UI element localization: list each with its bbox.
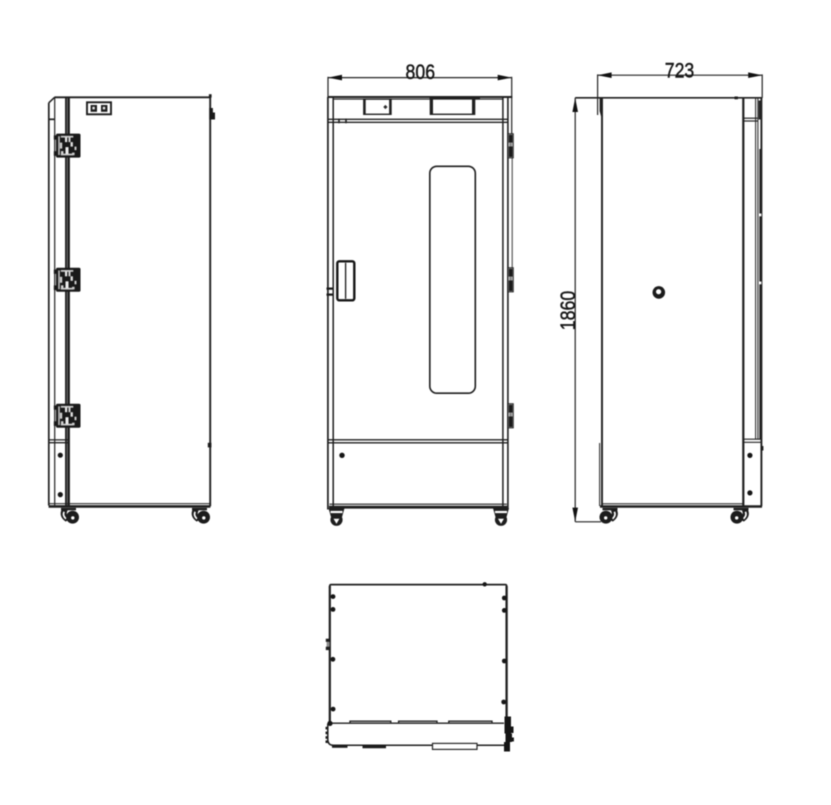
svg-text:806: 806	[406, 61, 436, 84]
svg-text:1860: 1860	[557, 291, 580, 331]
svg-text:723: 723	[665, 59, 695, 82]
